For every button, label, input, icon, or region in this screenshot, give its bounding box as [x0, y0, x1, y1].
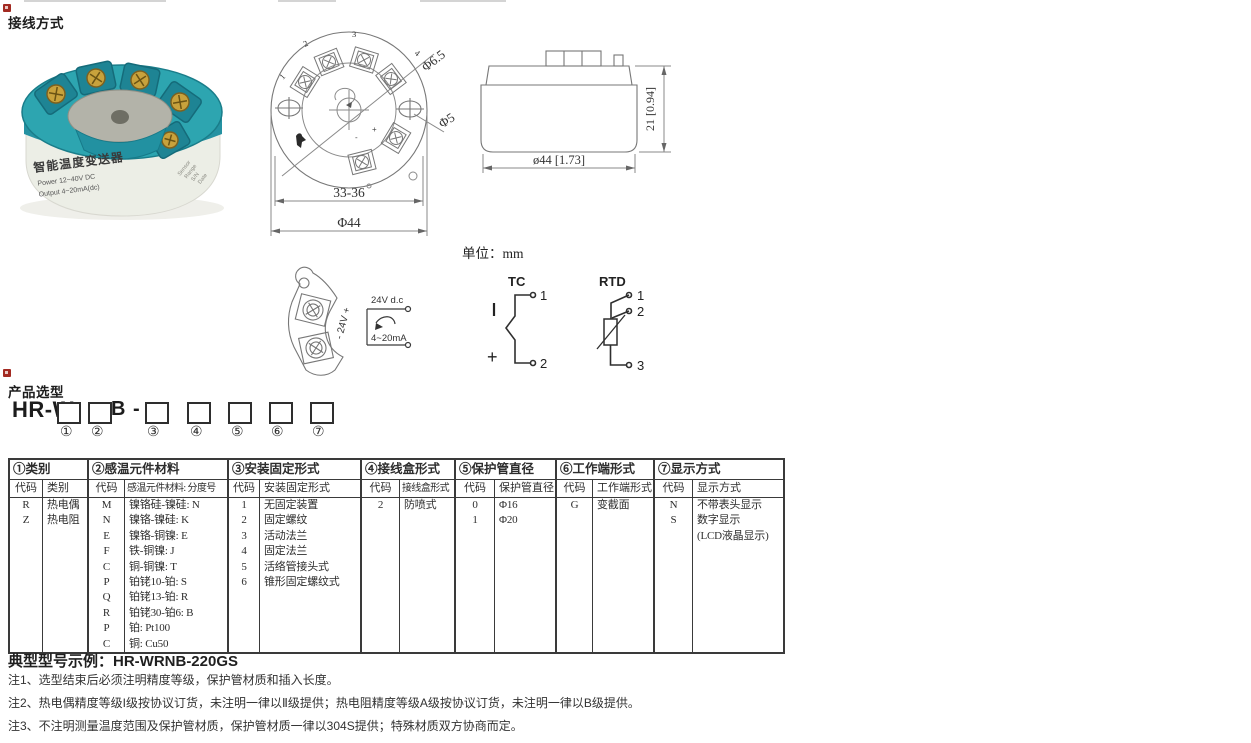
position-digit-7: ⑦ [312, 424, 325, 441]
loop-arrow-arc [376, 317, 395, 324]
code-cell: C [89, 560, 124, 575]
rtd-wiring-diagram: RTD 1 2 3 [585, 273, 657, 378]
code-cell: 3 [229, 529, 259, 544]
desc-cell: 热电阻 [47, 513, 87, 528]
column-body: NS不带表头显示数字显示(LCD液晶显示) [655, 498, 783, 652]
code-cell: N [655, 498, 692, 513]
rtd-pin1-label: 1 [637, 288, 644, 303]
column-group-title: ③安装固定形式 [229, 460, 360, 480]
cropped-text-remnant [278, 0, 336, 2]
hole-dim-large: Φ6.5 [418, 47, 448, 75]
code-cell [655, 529, 692, 544]
column-body: 01Φ16Φ20 [456, 498, 555, 652]
section-bullet-icon [3, 369, 11, 377]
terminal-number: 4 [413, 48, 423, 59]
code-cell: R [10, 498, 42, 513]
code-cell: 5 [229, 560, 259, 575]
code-header: 代码 [655, 480, 693, 497]
code-header: 代码 [10, 480, 43, 497]
code-column: 2 [362, 498, 400, 652]
model-code-box-7 [310, 402, 334, 424]
desc-column: Φ16Φ20 [495, 498, 555, 652]
rtd-pin3-label: 3 [637, 358, 644, 373]
code-cell: P [89, 575, 124, 590]
column-subheader: 代码感温元件材料: 分度号 [89, 480, 227, 498]
selection-table-group: ①类别代码类别RZ热电偶热电阻 [10, 460, 89, 652]
diameter-dim-label: Φ44 [337, 215, 361, 230]
connector-polarity-label: - 24V + [334, 306, 353, 340]
code-header: 代码 [362, 480, 400, 497]
desc-cell: 铂铑30-铂6: B [129, 606, 227, 621]
code-cell: 1 [229, 498, 259, 513]
rtd-pin2-label: 2 [637, 304, 644, 319]
column-group-title: ①类别 [10, 460, 87, 480]
cropped-text-remnant [24, 0, 166, 2]
tc-pin1-label: 1 [540, 288, 547, 303]
desc-column: 防喷式 [400, 498, 454, 652]
code-cell: E [89, 529, 124, 544]
column-group-title: ⑥工作端形式 [557, 460, 653, 480]
code-cell: N [89, 513, 124, 528]
desc-cell: 变截面 [597, 498, 653, 513]
tc-pin2-label: 2 [540, 356, 547, 371]
selection-table-group: ③安装固定形式代码安装固定形式123456无固定装置固定螺纹活动法兰固定法兰活络… [229, 460, 362, 652]
product-photo: 智能温度变送器 Power 12~40V DC Output 4~20mA(dc… [8, 50, 236, 222]
column-subheader: 代码类别 [10, 480, 87, 498]
position-digit-1: ① [60, 424, 73, 441]
code-cell: 1 [456, 513, 494, 528]
desc-header: 工作端形式 [593, 480, 653, 497]
terminal-number: 3 [352, 29, 356, 39]
code-column: NS [655, 498, 693, 652]
tc-title: TC [508, 274, 526, 289]
tc-plus-label: + [487, 347, 498, 367]
column-subheader: 代码工作端形式 [557, 480, 653, 498]
code-cell: 2 [229, 513, 259, 528]
note-1: 注1、选型结束后必须注明精度等级，保护管材质和插入长度。 [8, 671, 339, 688]
section-bullet-icon [3, 4, 11, 12]
code-cell: 4 [229, 544, 259, 559]
ground-symbol-icon [296, 133, 306, 148]
desc-header: 感温元件材料: 分度号 [125, 480, 225, 497]
desc-cell: 固定法兰 [264, 544, 360, 559]
selection-table: ①类别代码类别RZ热电偶热电阻②感温元件材料代码感温元件材料: 分度号MNEFC… [8, 458, 785, 654]
position-digit-6: ⑥ [271, 424, 284, 441]
code-cell: 2 [362, 498, 399, 513]
unit-label: 单位：mm [462, 242, 524, 262]
desc-cell: 镍铬-镍硅: K [129, 513, 227, 528]
selection-table-group: ⑤保护管直径代码保护管直径01Φ16Φ20 [456, 460, 557, 652]
desc-cell: 铂铑10-铂: S [129, 575, 227, 590]
desc-column: 变截面 [593, 498, 653, 652]
code-cell: R [89, 606, 124, 621]
selection-table-group: ②感温元件材料代码感温元件材料: 分度号MNEFCPQRPC镍铬硅-镍硅: N镍… [89, 460, 229, 652]
model-code-box-3 [145, 402, 169, 424]
model-code-box-4 [187, 402, 211, 424]
column-body: 2防喷式 [362, 498, 454, 652]
column-subheader: 代码保护管直径 [456, 480, 555, 498]
column-group-title: ⑤保护管直径 [456, 460, 555, 480]
desc-column: 热电偶热电阻 [43, 498, 87, 652]
model-code-box-1 [57, 402, 81, 424]
desc-header: 安装固定形式 [260, 480, 360, 497]
desc-cell: 铂铑13-铂: R [129, 590, 227, 605]
position-digit-2: ② [91, 424, 104, 441]
column-subheader: 代码显示方式 [655, 480, 783, 498]
minus-mark: - [355, 133, 358, 142]
top-view-drawing: Φ6.5 Φ5 + - 1 [256, 28, 466, 243]
desc-cell: 不带表头显示 [697, 498, 783, 513]
rtd-title: RTD [599, 274, 626, 289]
selection-table-group: ④接线盒形式代码接线盒形式2防喷式 [362, 460, 456, 652]
connector-terminals [295, 294, 333, 364]
cropped-text-remnant [420, 0, 506, 2]
current-label: 4~20mA [371, 333, 407, 344]
note-2: 注2、热电偶精度等级I级按协议订货，未注明一律以Ⅱ级提供；热电阻精度等级A级按协… [8, 694, 640, 711]
terminal-number: 1 [277, 71, 287, 81]
tc-wiring-diagram: TC 1 2 + [486, 273, 558, 378]
code-header: 代码 [89, 480, 125, 497]
desc-column: 镍铬硅-镍硅: N镍铬-镍硅: K镍铬-铜镍: E铁-铜镍: J铜-铜镍: T铂… [125, 498, 227, 652]
column-body: 123456无固定装置固定螺纹活动法兰固定法兰活络管接头式锥形固定螺纹式 [229, 498, 360, 652]
span-dim-label: 33-36 [333, 185, 365, 200]
connector-hole [299, 278, 309, 288]
desc-cell: 铂: Pt100 [129, 621, 227, 636]
hole-dim-small: Φ5 [436, 110, 458, 131]
code-header: 代码 [229, 480, 260, 497]
model-code-box-6 [269, 402, 293, 424]
code-cell: M [89, 498, 124, 513]
datasheet-page: 接线方式 智能温度变送器 Power 12~40V DC Output 4~20… [0, 0, 1251, 743]
column-group-title: ⑦显示方式 [655, 460, 783, 480]
power-loop-diagram: 24V d.c 4~20mA [362, 287, 462, 357]
column-subheader: 代码安装固定形式 [229, 480, 360, 498]
column-body: MNEFCPQRPC镍铬硅-镍硅: N镍铬-镍硅: K镍铬-铜镍: E铁-铜镍:… [89, 498, 227, 652]
model-code-box-2 [88, 402, 112, 424]
desc-cell: 活络管接头式 [264, 560, 360, 575]
column-group-title: ②感温元件材料 [89, 460, 227, 480]
code-column: 01 [456, 498, 495, 652]
column-body: G变截面 [557, 498, 653, 652]
supply-label: 24V d.c [371, 295, 403, 306]
desc-cell: 镍铬硅-镍硅: N [129, 498, 227, 513]
desc-cell: 镍铬-铜镍: E [129, 529, 227, 544]
code-header: 代码 [557, 480, 593, 497]
desc-cell: Φ20 [499, 513, 555, 528]
desc-cell: 防喷式 [404, 498, 454, 513]
height-dim-label: 21 [0.94] [643, 87, 657, 131]
desc-cell: 无固定装置 [264, 498, 360, 513]
tc-terminal-1 [531, 293, 536, 298]
code-cell: P [89, 621, 124, 636]
tc-element [506, 295, 530, 363]
side-view-drawing: 21 [0.94] ø44 [1.73] [468, 40, 683, 185]
position-digit-4: ④ [190, 424, 203, 441]
desc-cell: 固定螺纹 [264, 513, 360, 528]
section-title-wiring: 接线方式 [8, 12, 64, 32]
desc-cell: 数字显示 [697, 513, 783, 528]
tc-terminal-2 [531, 361, 536, 366]
desc-column: 无固定装置固定螺纹活动法兰固定法兰活络管接头式锥形固定螺纹式 [260, 498, 360, 652]
loop-arrowhead [375, 323, 383, 330]
model-code-box-5 [228, 402, 252, 424]
center-arrow-arc [335, 88, 355, 104]
column-subheader: 代码接线盒形式 [362, 480, 454, 498]
code-column: RZ [10, 498, 43, 652]
code-header: 代码 [456, 480, 495, 497]
desc-header: 保护管直径 [495, 480, 555, 497]
desc-header: 接线盒形式 [400, 480, 452, 497]
desc-cell: (LCD液晶显示) [697, 529, 783, 544]
plus-mark: + [372, 125, 377, 134]
desc-cell: 热电偶 [47, 498, 87, 513]
selection-table-group: ⑦显示方式代码显示方式NS不带表头显示数字显示(LCD液晶显示) [655, 460, 783, 652]
code-cell: Z [10, 513, 42, 528]
desc-header: 类别 [43, 480, 87, 497]
column-body: RZ热电偶热电阻 [10, 498, 87, 652]
column-group-title: ④接线盒形式 [362, 460, 454, 480]
rtd-element [597, 295, 629, 365]
desc-column: 不带表头显示数字显示(LCD液晶显示) [693, 498, 783, 652]
code-cell: 6 [229, 575, 259, 590]
code-cell: F [89, 544, 124, 559]
code-cell: Q [89, 590, 124, 605]
connector-outline [288, 267, 343, 375]
width-dim-label: ø44 [1.73] [533, 153, 585, 167]
small-hole [409, 172, 417, 180]
code-column: G [557, 498, 593, 652]
code-cell: G [557, 498, 592, 513]
desc-cell: Φ16 [499, 498, 555, 513]
desc-cell: 锥形固定螺纹式 [264, 575, 360, 590]
desc-header: 显示方式 [693, 480, 783, 497]
code-cell: 0 [456, 498, 494, 513]
model-code-row: HR-W B - ① ② ③ ④ ⑤ ⑥ ⑦ [0, 399, 420, 447]
center-hole [111, 110, 129, 124]
code-column: 123456 [229, 498, 260, 652]
position-digit-3: ③ [147, 424, 160, 441]
selection-table-group: ⑥工作端形式代码工作端形式G变截面 [557, 460, 655, 652]
code-column: MNEFCPQRPC [89, 498, 125, 652]
rtd-terminal-3 [627, 363, 632, 368]
desc-cell: 铜-铜镍: T [129, 560, 227, 575]
code-cell: S [655, 513, 692, 528]
position-digit-5: ⑤ [231, 424, 244, 441]
side-view-body [481, 51, 637, 152]
note-3: 注3、不注明测量温度范围及保护管材质，保护管材质一律以304S提供；特殊材质双方… [8, 717, 523, 734]
model-mid: B - [111, 398, 141, 421]
terminal-connector-drawing: - 24V + [283, 270, 373, 380]
desc-cell: 活动法兰 [264, 529, 360, 544]
desc-cell: 铁-铜镍: J [129, 544, 227, 559]
example-model: 典型型号示例：HR-WRNB-220GS [8, 650, 238, 671]
